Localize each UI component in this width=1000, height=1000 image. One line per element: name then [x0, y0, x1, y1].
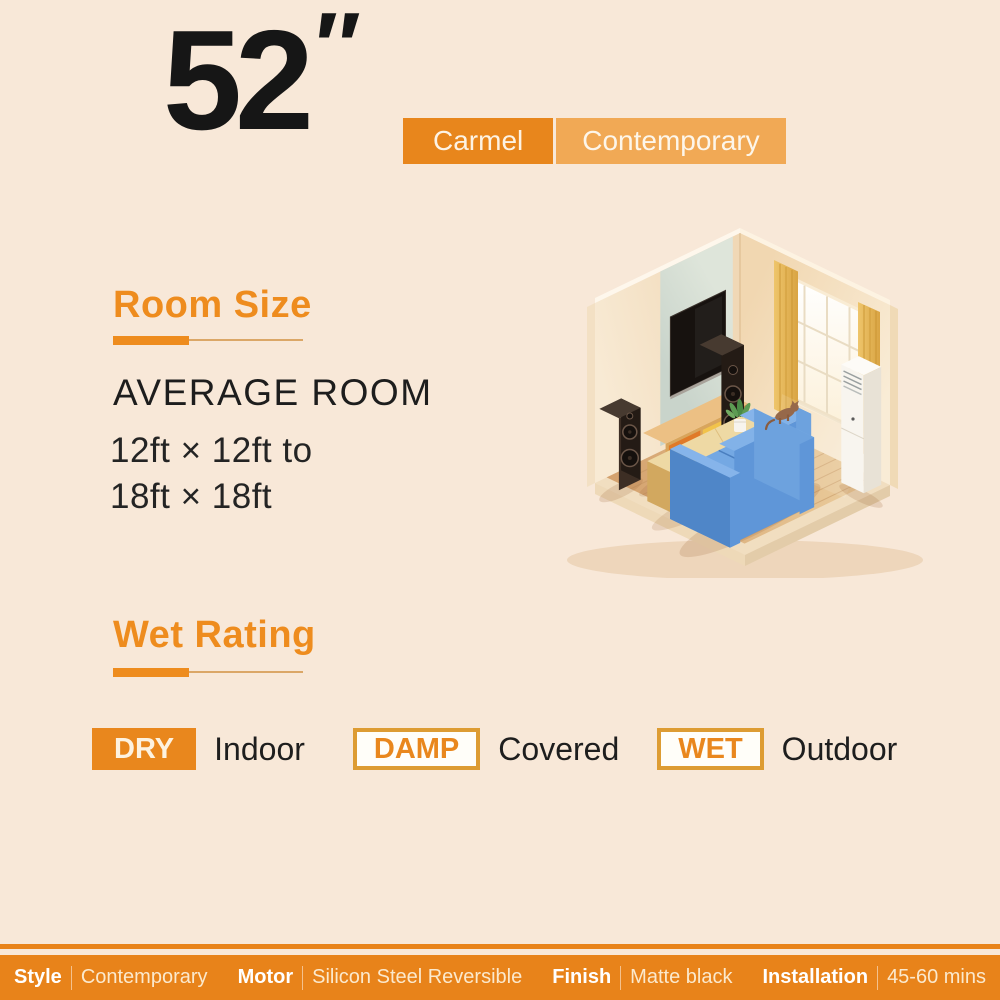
- spec-style: Style Contemporary: [14, 966, 208, 990]
- dry-rating-badge: DRY: [92, 728, 196, 770]
- spec-value: Contemporary: [81, 966, 208, 989]
- spec-divider: [71, 966, 72, 990]
- wet-rating-divider: [113, 668, 303, 677]
- room-size-divider: [113, 336, 303, 345]
- average-room-label: AVERAGE ROOM: [113, 372, 433, 414]
- dry-rating-label: Indoor: [214, 731, 305, 768]
- series-name-badge: Carmel: [403, 118, 553, 164]
- spec-divider: [877, 966, 878, 990]
- room-dimensions-line1: 12ft × 12ft to: [110, 428, 313, 474]
- spec-value: Silicon Steel Reversible: [312, 966, 522, 989]
- wet-rating-scale: DRY Indoor DAMP Covered WET Outdoor: [92, 727, 897, 771]
- infographic-page: 52″ Carmel Contemporary Room Size AVERAG…: [0, 0, 1000, 1000]
- model-badges: Carmel Contemporary: [403, 118, 786, 164]
- divider-accent: [113, 668, 189, 677]
- wet-rating-title: Wet Rating: [113, 614, 316, 657]
- divider-accent: [113, 336, 189, 345]
- room-size-title: Room Size: [113, 284, 312, 327]
- spec-value: 45-60 mins: [887, 966, 986, 989]
- spec-bar: Style Contemporary Motor Silicon Steel R…: [0, 955, 1000, 1000]
- spec-label: Motor: [238, 966, 294, 989]
- spec-divider: [620, 966, 621, 990]
- wet-rating-badge: WET: [657, 728, 763, 770]
- spec-value: Matte black: [630, 966, 732, 989]
- spec-label: Finish: [552, 966, 611, 989]
- spec-motor: Motor Silicon Steel Reversible: [238, 966, 523, 990]
- spec-label: Style: [14, 966, 62, 989]
- damp-rating-badge: DAMP: [353, 728, 480, 770]
- fan-size-value: 52: [163, 1, 307, 160]
- fan-size: 52″: [163, 10, 359, 152]
- room-dimensions: 12ft × 12ft to 18ft × 18ft: [110, 428, 313, 520]
- damp-rating-label: Covered: [498, 731, 619, 768]
- spec-label: Installation: [762, 966, 868, 989]
- room-dimensions-line2: 18ft × 18ft: [110, 474, 313, 520]
- spec-finish: Finish Matte black: [552, 966, 732, 990]
- spec-divider: [302, 966, 303, 990]
- inch-mark: ″: [315, 0, 359, 100]
- living-room-illustration: [545, 218, 975, 578]
- footer-accent-strip: [0, 944, 1000, 949]
- style-name-badge: Contemporary: [556, 118, 785, 164]
- wet-rating-label: Outdoor: [782, 731, 898, 768]
- spec-installation: Installation 45-60 mins: [762, 966, 986, 990]
